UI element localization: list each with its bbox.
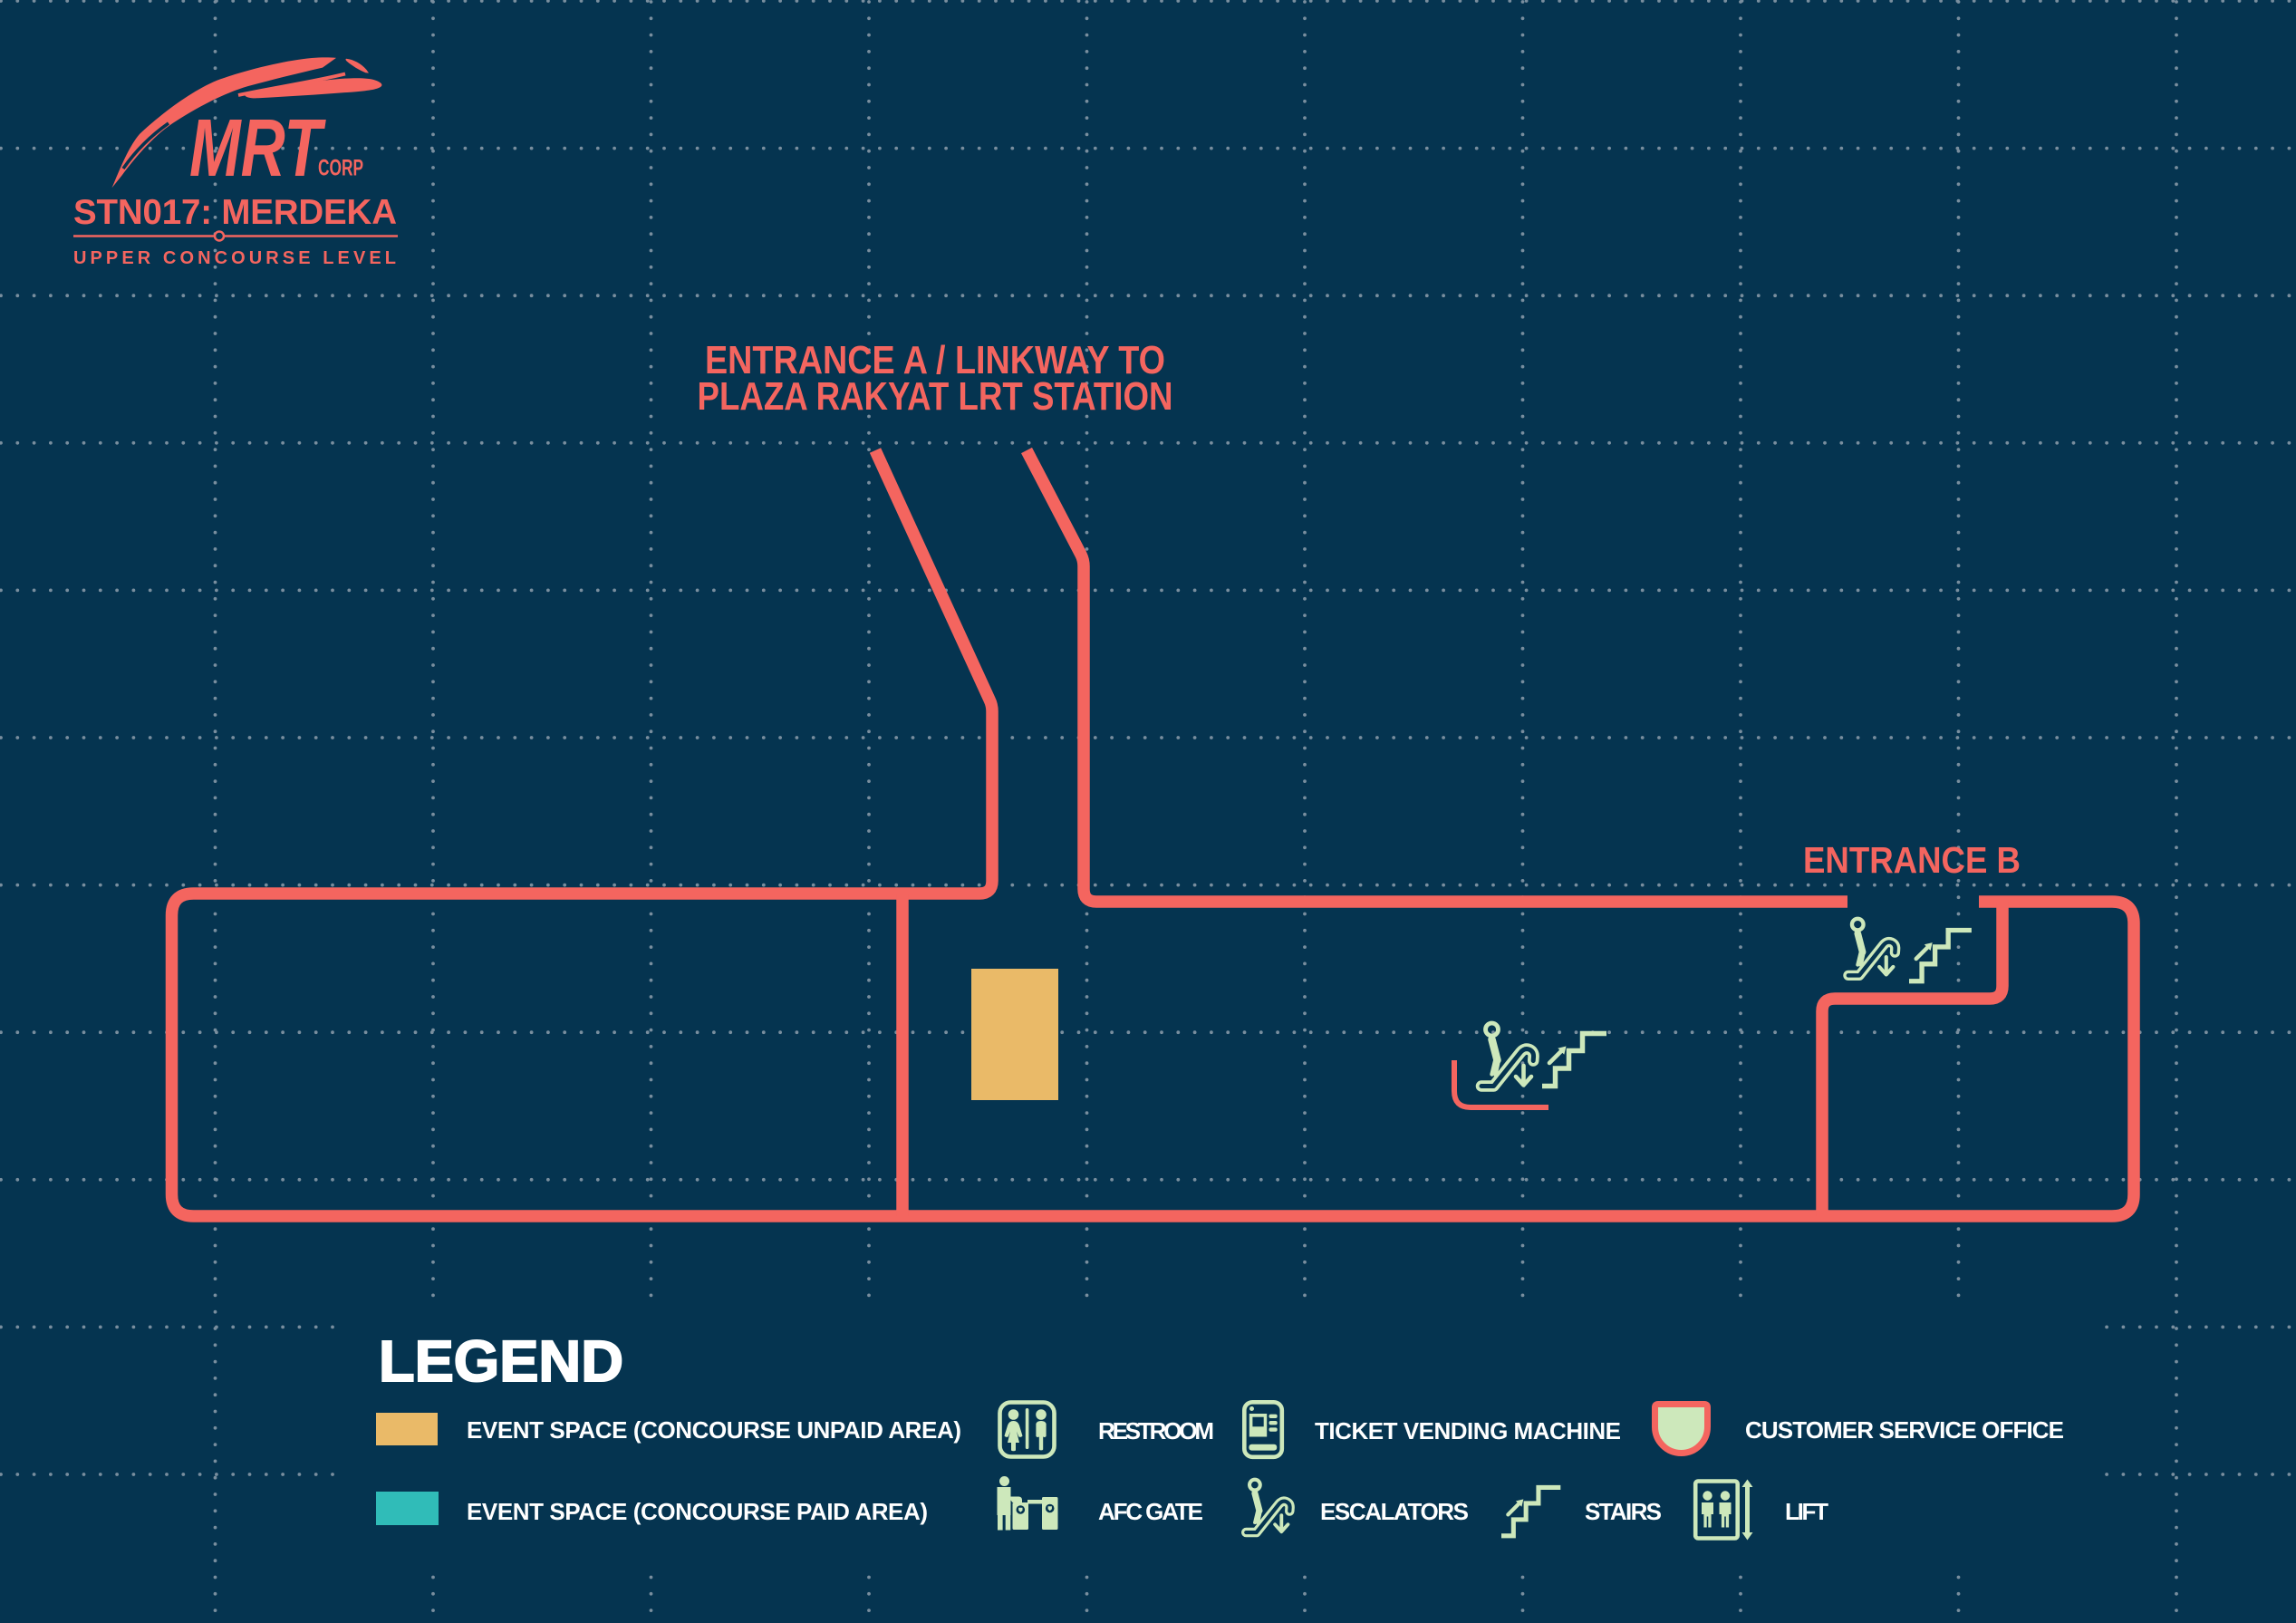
svg-text:ENTRANCE B: ENTRANCE B [1803,839,2021,881]
svg-text:LEGEND: LEGEND [379,1328,623,1394]
svg-text:TICKET VENDING MACHINE: TICKET VENDING MACHINE [1315,1417,1621,1444]
svg-text:EVENT SPACE (CONCOURSE UNPAID: EVENT SPACE (CONCOURSE UNPAID AREA) [467,1416,961,1444]
svg-text:UPPER CONCOURSE LEVEL: UPPER CONCOURSE LEVEL [73,248,396,268]
svg-text:CORP: CORP [318,156,363,181]
svg-text:CUSTOMER SERVICE OFFICE: CUSTOMER SERVICE OFFICE [1745,1416,2064,1444]
svg-text:MRT: MRT [189,103,326,194]
svg-text:PLAZA RAKYAT LRT STATION: PLAZA RAKYAT LRT STATION [698,374,1173,419]
svg-text:STN017: MERDEKA: STN017: MERDEKA [73,193,398,232]
svg-text:STAIRS: STAIRS [1585,1498,1662,1525]
svg-text:AFC GATE: AFC GATE [1098,1498,1203,1525]
svg-text:EVENT SPACE (CONCOURSE PAID AR: EVENT SPACE (CONCOURSE PAID AREA) [467,1498,928,1525]
svg-text:RESTROOM: RESTROOM [1098,1417,1214,1444]
svg-text:ESCALATORS: ESCALATORS [1320,1498,1469,1525]
svg-text:LIFT: LIFT [1785,1498,1828,1525]
